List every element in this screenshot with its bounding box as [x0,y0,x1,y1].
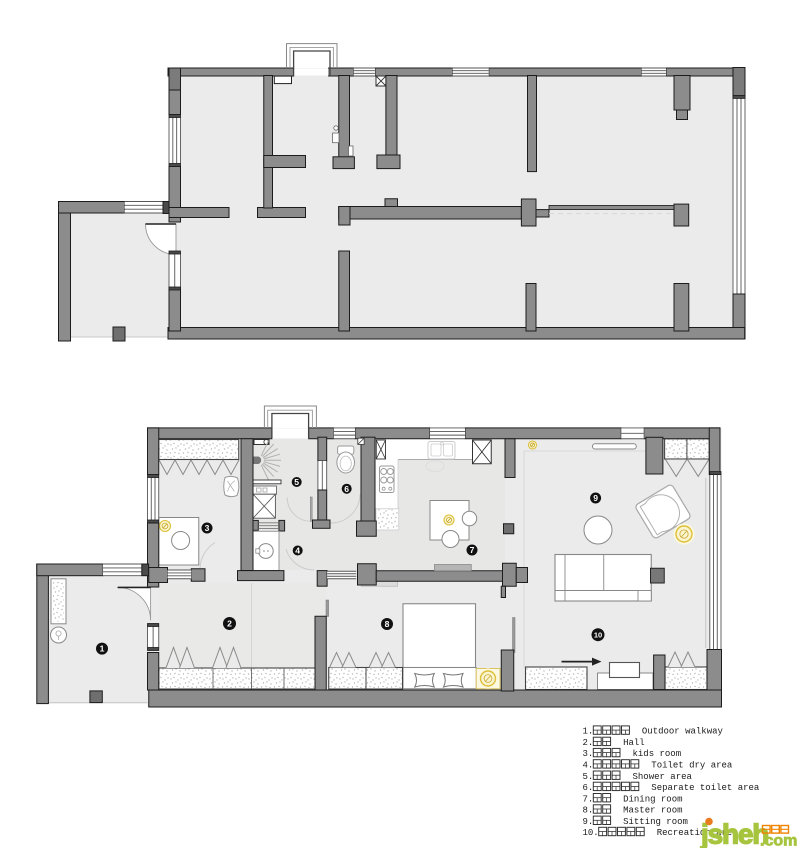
svg-text:Toilet dry area: Toilet dry area [651,761,733,771]
svg-text:2: 2 [227,619,232,629]
svg-text:7.: 7. [583,794,594,804]
svg-text:Separate toilet area: Separate toilet area [651,783,760,793]
svg-text:8.: 8. [583,806,594,816]
svg-text:Master room: Master room [623,806,682,816]
svg-text:.com: .com [760,833,797,848]
svg-text:1.: 1. [583,727,594,737]
svg-text:10.: 10. [583,828,599,838]
svg-text:4: 4 [295,546,300,556]
svg-text:3: 3 [205,523,210,533]
svg-text:Dining room: Dining room [623,794,682,804]
svg-text:1: 1 [100,644,105,654]
svg-text:6: 6 [344,484,349,494]
svg-text:Shower area: Shower area [633,772,693,782]
svg-text:Hall: Hall [623,738,645,748]
svg-text:Sitting room: Sitting room [623,817,688,827]
svg-text:6.: 6. [583,783,594,793]
svg-text:9: 9 [593,493,598,503]
svg-text:kids room: kids room [633,749,682,759]
svg-text:2.: 2. [583,738,594,748]
svg-text:7: 7 [470,545,475,555]
svg-text:5.: 5. [583,772,594,782]
svg-text:8: 8 [385,619,390,629]
svg-text:10: 10 [594,630,602,639]
svg-text:9.: 9. [583,817,594,827]
svg-text:Outdoor walkway: Outdoor walkway [642,727,724,737]
svg-text:5: 5 [294,477,299,487]
svg-text:3.: 3. [583,749,594,759]
svg-text:4.: 4. [583,761,594,771]
